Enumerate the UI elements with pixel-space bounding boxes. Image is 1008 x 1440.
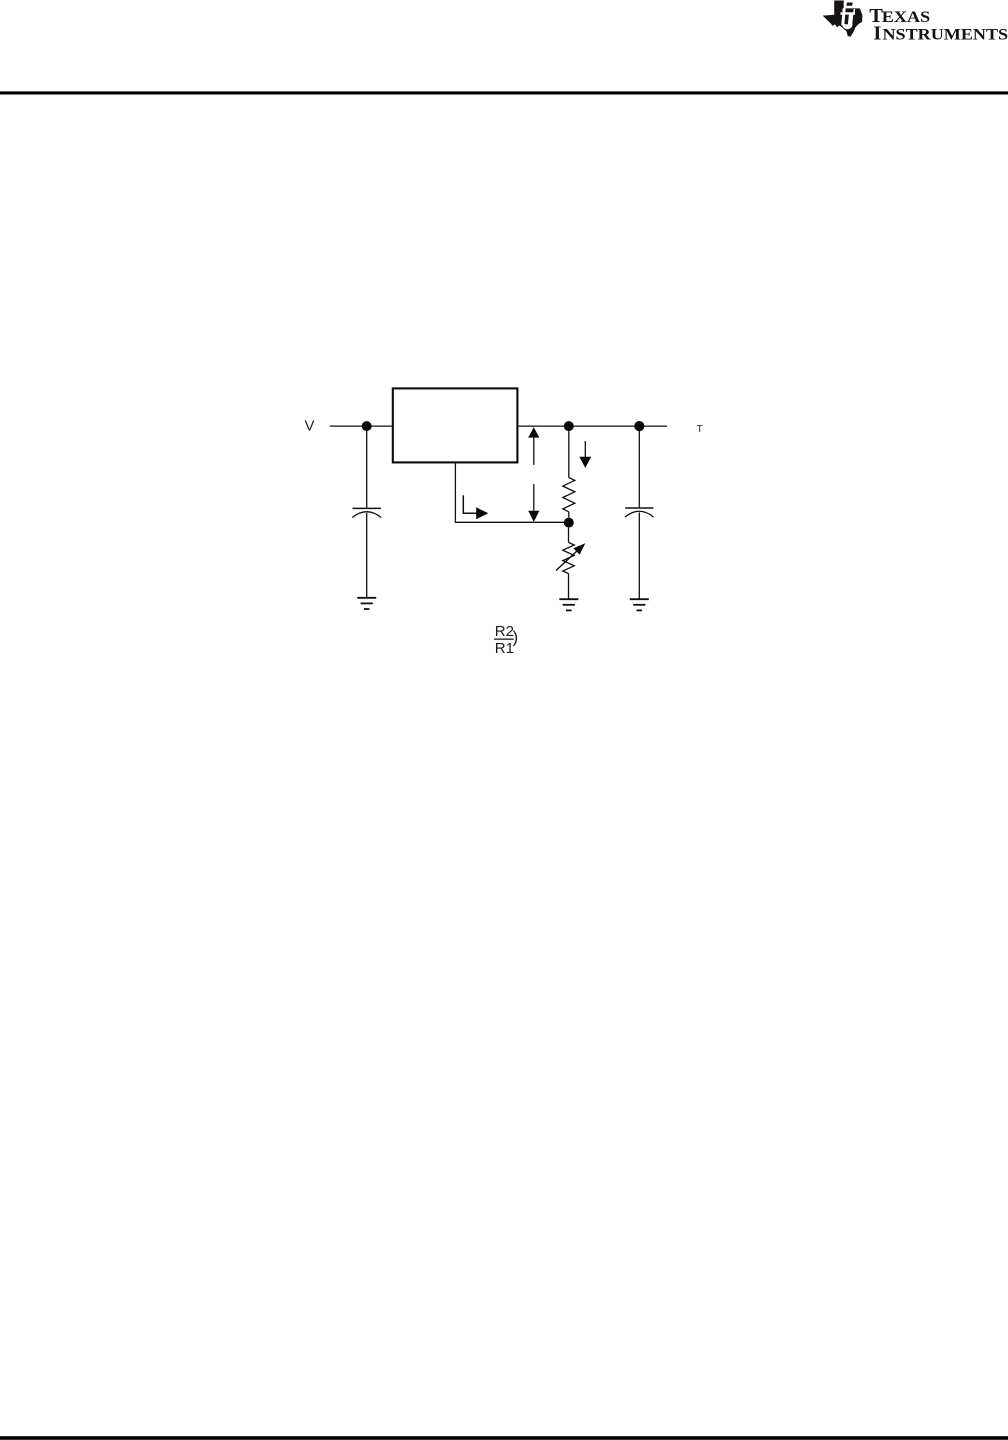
svg-text:R1: R1 bbox=[495, 640, 514, 657]
svg-text:): ) bbox=[513, 629, 519, 647]
svg-text:T: T bbox=[697, 424, 703, 435]
svg-text:NSTRUMENTS: NSTRUMENTS bbox=[883, 26, 1008, 44]
svg-text:EXAS: EXAS bbox=[882, 8, 930, 26]
svg-text:I: I bbox=[873, 23, 881, 45]
svg-text:R2: R2 bbox=[495, 623, 514, 640]
svg-text:V: V bbox=[305, 417, 315, 434]
